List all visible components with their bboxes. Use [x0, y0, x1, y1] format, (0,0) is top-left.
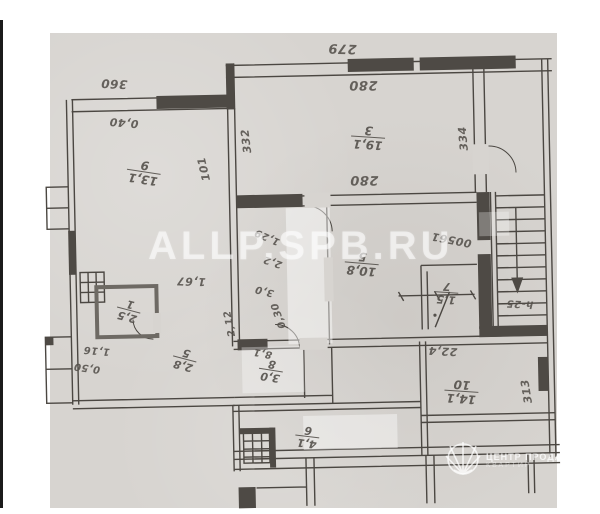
scanned-floorplan-page: { "watermark": { "text": "ALLP.SPB.RU" }… [0, 0, 600, 508]
dimension-label: 1,67 [176, 274, 206, 288]
dimension-label: 334 [456, 126, 471, 152]
agency-logo: ЦЕНТР ПРОДАЖИ КВАРТИР [440, 436, 590, 496]
dimension-label: 0,40 [109, 115, 139, 130]
dimension-label: 280 [349, 77, 378, 92]
logo-line1: ЦЕНТР ПРОДАЖИ [486, 452, 579, 462]
room-area-fraction: 19,13 [351, 123, 386, 151]
dimension-label: 279 [328, 40, 357, 56]
dimension-label: 22,4 [428, 344, 458, 358]
globe-rays-icon [440, 436, 486, 482]
room-area-fraction: 3,08 [258, 357, 285, 384]
room-area-fraction: 14,110 [444, 377, 479, 405]
dimension-label: h-25 [506, 297, 534, 309]
dimension-label: 360 [100, 76, 127, 91]
watermark-text: ALLP.SPB.RU [148, 224, 448, 269]
room-area-fraction: 13,19 [125, 157, 162, 188]
room-area-fraction: 4,16 [294, 424, 320, 451]
room-area-fraction: 1,57 [434, 280, 459, 306]
dimension-label: 1,16 [83, 344, 111, 357]
dimension-label: 280 [350, 172, 379, 187]
logo-line2: КВАРТИР [486, 462, 579, 469]
